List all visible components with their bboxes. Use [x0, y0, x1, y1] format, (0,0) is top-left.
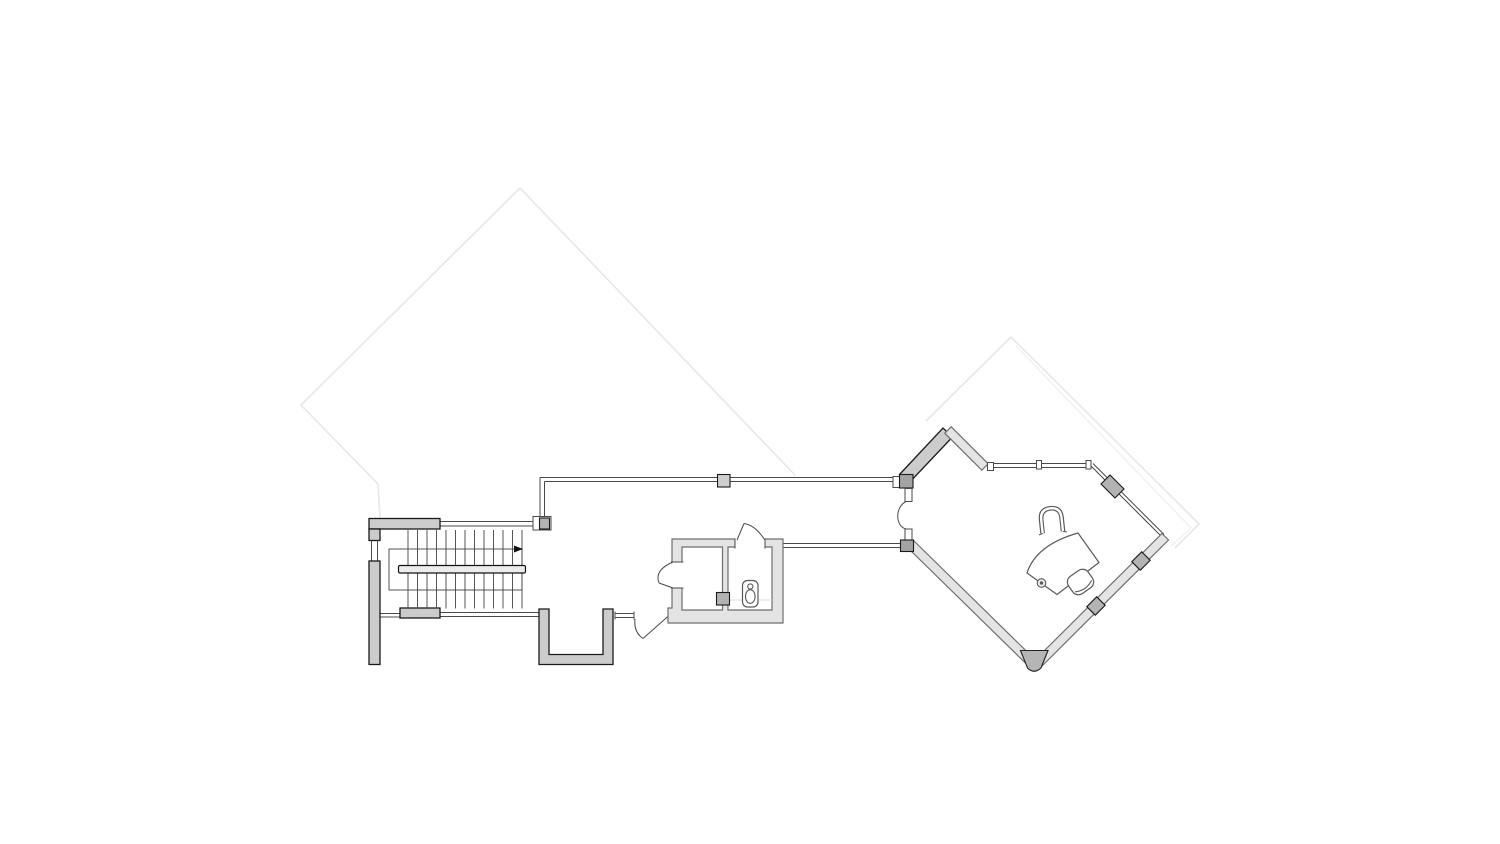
office-entry-door-arc	[898, 502, 906, 530]
stair-wall-lower	[400, 608, 440, 618]
wc-top-door-opening	[735, 538, 765, 549]
stair-wall-top	[369, 519, 440, 530]
floor-plan-drawing	[0, 0, 1500, 844]
office-door-stub-bottom	[905, 529, 912, 540]
wc-block	[658, 524, 783, 624]
office-chair	[1036, 505, 1067, 535]
floor-below-outline-right-west	[926, 337, 1011, 421]
stair-glazing-post	[540, 518, 550, 529]
glazing-stair-south	[440, 613, 539, 617]
office-wall-southwest	[907, 541, 1037, 669]
wc-top-door-arc	[744, 524, 765, 540]
corridor-glazing	[380, 478, 900, 620]
floor-below-outline-left-east	[520, 188, 795, 475]
wc-partition-block	[717, 593, 730, 606]
stair-handrail	[399, 566, 526, 574]
office-wall-north	[945, 427, 988, 470]
floor-below-outline	[301, 188, 1199, 548]
glazing-jog-vertical	[540, 478, 545, 518]
glazing-corridor-door-side	[615, 612, 634, 620]
stair-wall-left-stub	[369, 529, 380, 541]
corridor-door-leaf	[643, 616, 669, 639]
corridor-post	[718, 475, 731, 488]
toilet	[743, 581, 759, 608]
u-shaped-wall	[539, 609, 613, 665]
stair-hall	[369, 517, 613, 665]
glazing-stair-north	[440, 522, 533, 527]
office-furniture	[1027, 505, 1099, 597]
stair-wall-left	[369, 561, 380, 665]
glazing-corridor-south	[783, 542, 900, 550]
floor-below-outline-left-west	[301, 188, 520, 518]
floor-plan-canvas	[0, 0, 1500, 844]
corridor-door	[635, 616, 669, 639]
office-nw-wall-block	[900, 475, 914, 489]
glazing-stair-south-left	[380, 614, 400, 618]
corridor-door-swing-arc	[635, 619, 643, 639]
glazing-corridor-north	[540, 478, 893, 482]
office-sw-wall-post	[901, 540, 914, 552]
wc-lobby-door-opening	[671, 562, 684, 588]
office-door-stub-top	[905, 489, 912, 502]
office-glazing-east	[1091, 464, 1164, 538]
stair-window-left	[372, 541, 378, 562]
office-wall-north-cap	[988, 463, 994, 471]
office-glazing-tick-end	[1086, 461, 1091, 470]
office-corner-wedge	[1021, 651, 1049, 672]
wc-walls	[668, 539, 783, 623]
office-room	[893, 427, 1169, 671]
office-glazing-tick-mid	[1037, 461, 1042, 470]
office-glazing-mullion	[1101, 475, 1124, 498]
desk-grommet-dot	[1040, 581, 1043, 584]
